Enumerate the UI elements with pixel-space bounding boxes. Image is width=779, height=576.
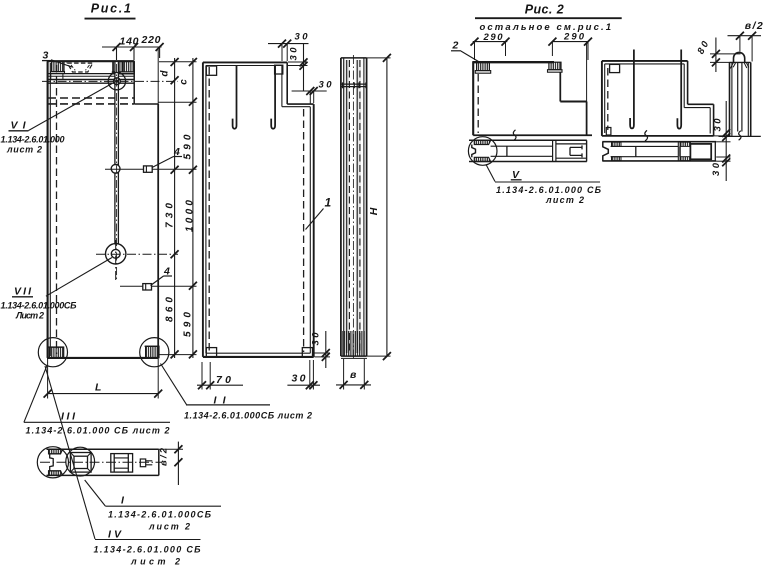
svg-text:1.134-2.6.01.000 СБ: 1.134-2.6.01.000 СБ bbox=[94, 545, 202, 555]
svg-text:30: 30 bbox=[295, 32, 309, 43]
svg-text:30: 30 bbox=[289, 47, 300, 61]
svg-text:1.134-2.6.01.000 СБ лист 2: 1.134-2.6.01.000 СБ лист 2 bbox=[26, 426, 170, 436]
svg-text:I: I bbox=[121, 495, 125, 507]
svg-text:Н: Н bbox=[368, 207, 380, 215]
svg-text:в/2: в/2 bbox=[745, 20, 763, 32]
svg-text:Рис.1: Рис.1 bbox=[91, 2, 131, 16]
svg-text:30: 30 bbox=[292, 373, 306, 385]
svg-text:590: 590 bbox=[183, 134, 194, 159]
svg-text:лист 2: лист 2 bbox=[545, 195, 584, 205]
svg-text:220: 220 bbox=[141, 34, 161, 46]
svg-text:c: c bbox=[178, 79, 189, 85]
svg-text:IV: IV bbox=[108, 529, 122, 541]
svg-text:1.134-2.6.01.000 СБ: 1.134-2.6.01.000 СБ bbox=[496, 185, 602, 195]
svg-text:d: d bbox=[160, 70, 171, 77]
svg-text:590: 590 bbox=[183, 312, 194, 337]
svg-text:3: 3 bbox=[43, 50, 49, 62]
svg-text:1.134-2.6.01.000СБ: 1.134-2.6.01.000СБ bbox=[108, 510, 212, 520]
svg-text:лист 2: лист 2 bbox=[6, 145, 42, 155]
svg-text:70: 70 bbox=[216, 374, 231, 386]
svg-text:30: 30 bbox=[311, 332, 322, 346]
svg-text:730: 730 bbox=[165, 203, 176, 228]
svg-text:Лист 2: Лист 2 bbox=[15, 311, 44, 321]
svg-text:30: 30 bbox=[711, 162, 722, 176]
svg-text:80: 80 bbox=[695, 39, 711, 56]
svg-text:290: 290 bbox=[483, 32, 504, 43]
svg-text:2: 2 bbox=[452, 40, 459, 52]
svg-text:L: L bbox=[95, 382, 101, 394]
svg-text:140: 140 bbox=[120, 36, 139, 48]
svg-text:лист 2: лист 2 bbox=[130, 557, 180, 567]
svg-text:30: 30 bbox=[712, 118, 723, 132]
svg-text:860: 860 bbox=[165, 297, 176, 322]
svg-text:30: 30 bbox=[319, 80, 333, 91]
svg-text:в/2: в/2 bbox=[159, 447, 170, 466]
svg-text:в: в bbox=[350, 369, 357, 381]
svg-text:290: 290 bbox=[563, 32, 585, 43]
svg-text:VI: VI bbox=[11, 120, 27, 132]
svg-text:Рис. 2: Рис. 2 bbox=[525, 3, 564, 17]
svg-text:1.134-2.6.01.000СБ лист 2: 1.134-2.6.01.000СБ лист 2 bbox=[184, 411, 312, 421]
svg-text:1: 1 bbox=[325, 196, 332, 210]
svg-text:III: III bbox=[61, 411, 76, 423]
svg-text:1.134-2.6.01.000: 1.134-2.6.01.000 bbox=[1, 135, 65, 145]
svg-text:1000: 1000 bbox=[185, 200, 196, 232]
svg-text:VII: VII bbox=[14, 286, 32, 298]
svg-text:лист 2: лист 2 bbox=[148, 522, 190, 532]
svg-text:1.134-2.6.01.000СБ: 1.134-2.6.01.000СБ bbox=[1, 301, 78, 311]
